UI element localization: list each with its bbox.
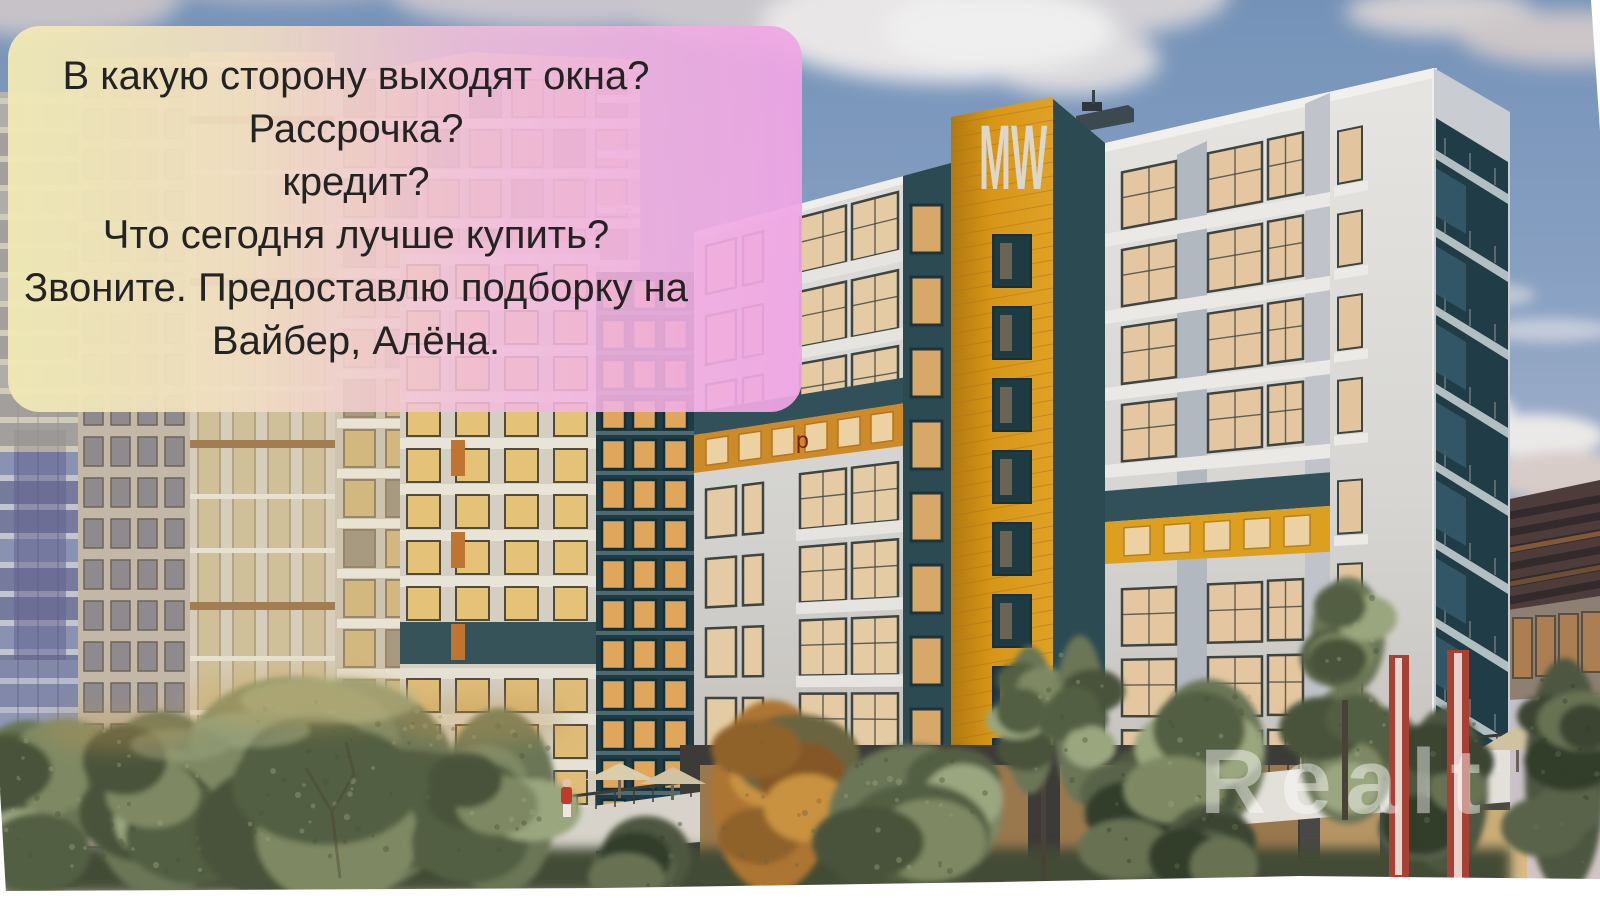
svg-text:Вайбер, Алёна.: Вайбер, Алёна.	[212, 319, 500, 363]
svg-text:Звоните. Предоставлю подборку: Звоните. Предоставлю подборку на	[24, 266, 689, 310]
svg-text:В какую сторону выходят окна?: В какую сторону выходят окна?	[63, 54, 650, 98]
svg-text:Рассрочка?: Рассрочка?	[249, 107, 464, 151]
svg-text:MW: MW	[979, 106, 1048, 209]
svg-text:Что сегодня лучше купить?: Что сегодня лучше купить?	[103, 213, 609, 257]
svg-text:Realt: Realt	[1200, 731, 1495, 833]
svg-text:кредит?: кредит?	[282, 160, 429, 204]
svg-text:p: p	[796, 427, 809, 453]
